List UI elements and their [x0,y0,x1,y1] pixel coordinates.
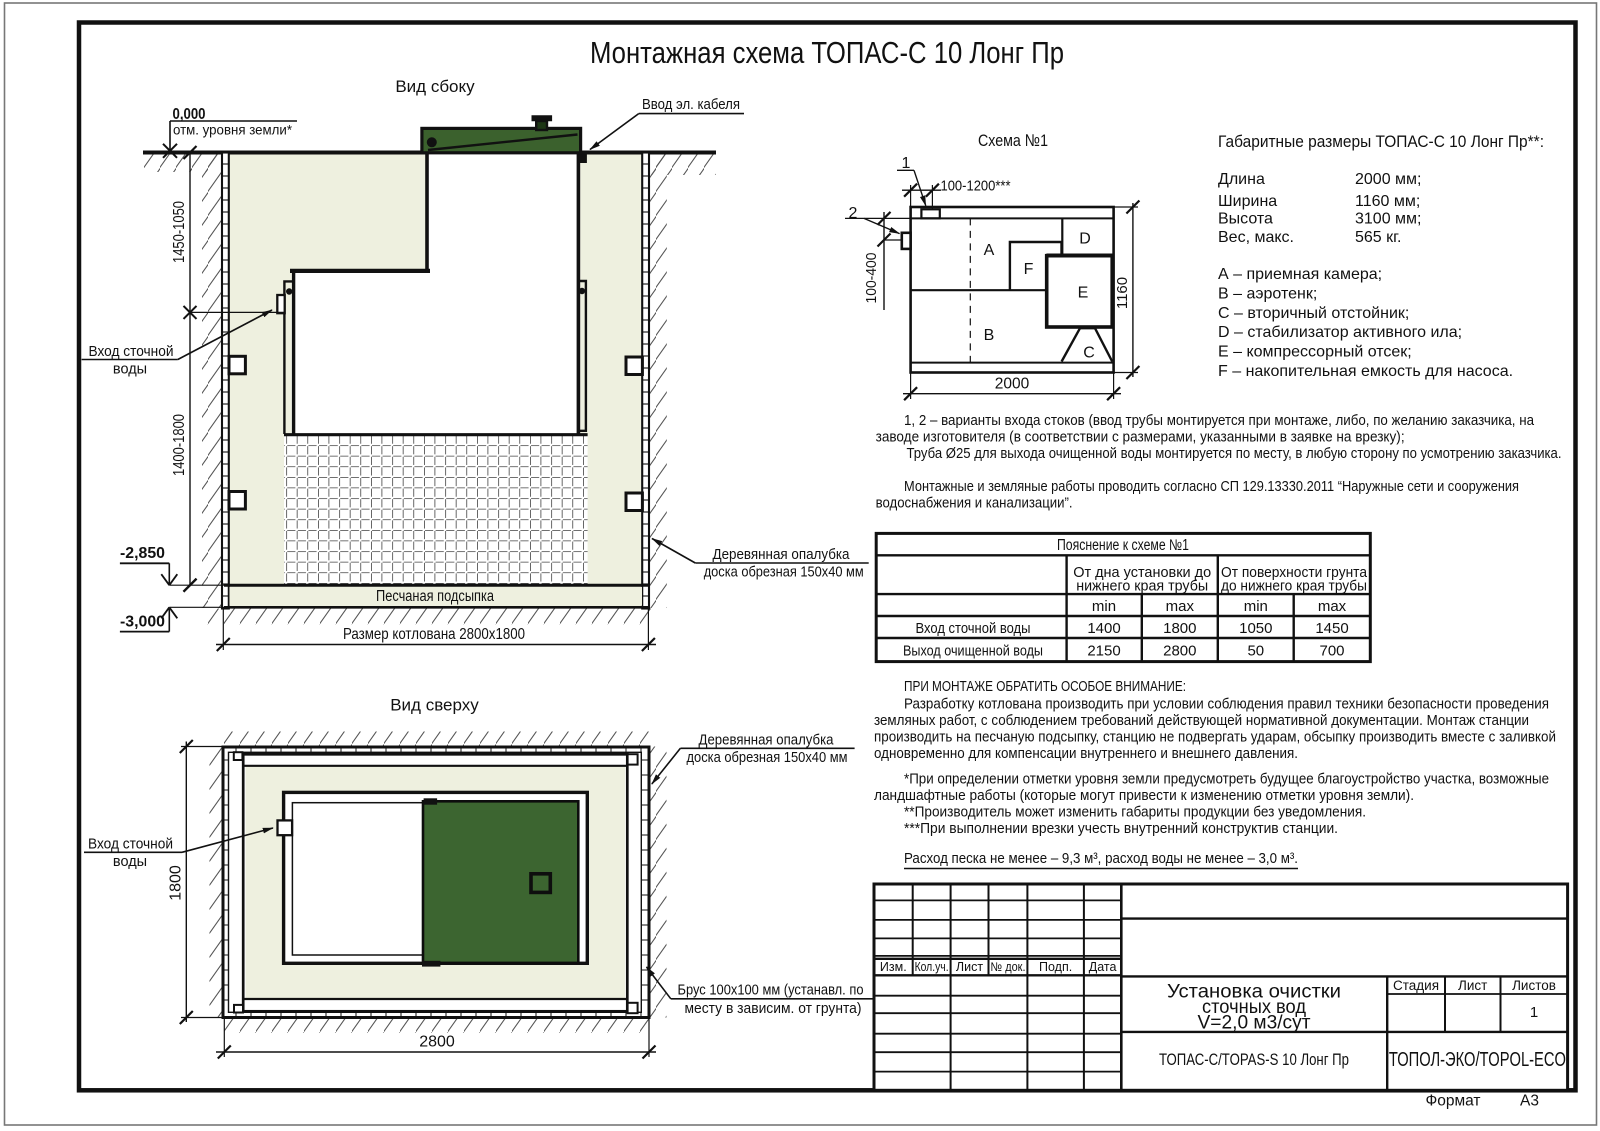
svg-text:А – приемная камера;: А – приемная камера; [1218,266,1382,283]
svg-text:F: F [1024,261,1034,278]
svg-text:1160: 1160 [1114,277,1131,309]
svg-text:1050: 1050 [1239,620,1272,637]
svg-text:Кол.уч.: Кол.уч. [915,960,949,974]
svg-text:1800: 1800 [1163,620,1196,637]
svg-text:Монтажная схема ТОПАС-С 10 Лон: Монтажная схема ТОПАС-С 10 Лонг Пр [590,35,1064,70]
svg-text:Вход сточной: Вход сточной [88,837,173,853]
svg-text:1: 1 [902,155,911,172]
svg-text:Разработку котлована производи: Разработку котлована производить при усл… [904,696,1549,713]
svg-text:№ док.: № док. [991,960,1026,974]
svg-text:Дата: Дата [1089,960,1117,974]
svg-text:max: max [1166,598,1195,615]
svg-text:одновременно для компенсации в: одновременно для компенсации внутреннего… [874,745,1298,762]
svg-text:2150: 2150 [1087,643,1120,660]
svg-text:B: B [984,327,995,344]
svg-text:Листов: Листов [1512,978,1556,993]
svg-text:Ввод эл. кабеля: Ввод эл. кабеля [642,97,740,113]
svg-text:ТОПОЛ-ЭКО/TOPOL-ECO: ТОПОЛ-ЭКО/TOPOL-ECO [1389,1049,1566,1071]
svg-text:1800: 1800 [168,865,185,901]
svg-text:водоснабжения и канализации”.: водоснабжения и канализации”. [876,495,1073,512]
svg-text:1450-1050: 1450-1050 [171,201,188,263]
svg-text:**Производитель может изменить: **Производитель может изменить габариты … [904,804,1366,821]
svg-text:производить на песчаную подсып: производить на песчаную подсыпку, станци… [874,729,1556,746]
svg-text:700: 700 [1319,643,1344,660]
svg-text:Песчаная подсыпка: Песчаная подсыпка [376,588,494,605]
svg-text:1450: 1450 [1315,620,1348,637]
svg-text:Высота: Высота [1218,211,1273,228]
svg-text:100-1200***: 100-1200*** [941,178,1011,195]
svg-text:Вход сточной: Вход сточной [89,344,174,360]
svg-text:Е – компрессорный отсек;: Е – компрессорный отсек; [1218,344,1412,361]
svg-text:1400: 1400 [1087,620,1120,637]
svg-text:доска обрезная 150х40 мм: доска обрезная 150х40 мм [704,565,864,581]
svg-text:Вид сверху: Вид сверху [390,696,479,715]
svg-text:V=2,0 м3/сут: V=2,0 м3/сут [1198,1013,1311,1034]
svg-text:воды: воды [113,854,147,870]
svg-text:2000 мм;: 2000 мм; [1355,171,1421,188]
svg-text:Деревянная опалубка: Деревянная опалубка [713,547,851,563]
svg-text:D: D [1079,231,1091,248]
svg-text:D – стабилизатор активного ила: D – стабилизатор активного ила; [1218,324,1462,341]
svg-text:2800: 2800 [419,1034,455,1051]
svg-text:Габаритные размеры ТОПАС-С 10: Габаритные размеры ТОПАС-С 10 Лонг Пр**: [1218,133,1544,151]
svg-text:1, 2 – варианты входа стоков: 1, 2 – варианты входа стоков (ввод трубы… [904,412,1535,429]
svg-text:50: 50 [1247,643,1264,660]
svg-text:*При определении отметки уровн: *При определении отметки уровня земли пр… [904,771,1549,788]
svg-text:C: C [1083,345,1095,362]
svg-text:1160 мм;: 1160 мм; [1355,193,1420,210]
svg-text:Брус 100х100 мм (устанавл. по: Брус 100х100 мм (устанавл. по [678,983,864,999]
svg-text:Вход сточной воды: Вход сточной воды [916,620,1031,637]
svg-text:отм. уровня земли*: отм. уровня земли* [173,123,293,138]
svg-text:Деревянная опалубка: Деревянная опалубка [699,733,835,749]
svg-text:заводе изготовителя (в соответ: заводе изготовителя (в соответствии с ра… [876,429,1405,446]
svg-text:***При выполнении врезки учест: ***При выполнении врезки учесть внутренн… [904,820,1338,837]
svg-text:Вид сбоку: Вид сбоку [395,77,475,96]
svg-text:Пояснение к схеме №1: Пояснение к схеме №1 [1057,537,1189,554]
svg-text:Длина: Длина [1218,171,1265,188]
svg-text:С – вторичный отстойник;: С – вторичный отстойник; [1218,305,1409,322]
svg-text:ландшафтные работы (которые мо: ландшафтные работы (которые могут привес… [874,787,1414,804]
svg-text:Выход очищенной воды: Выход очищенной воды [903,643,1043,660]
svg-text:Вес, макс.: Вес, макс. [1218,229,1294,246]
svg-text:В – аэротенк;: В – аэротенк; [1218,285,1317,302]
svg-text:A: A [984,242,995,259]
svg-text:min: min [1244,598,1268,615]
svg-text:E: E [1078,285,1089,302]
svg-text:-3,000: -3,000 [120,614,165,631]
svg-text:Стадия: Стадия [1393,978,1439,993]
svg-text:А3: А3 [1520,1093,1539,1110]
svg-text:Подп.: Подп. [1039,960,1072,974]
svg-text:доска обрезная 150х40 мм: доска обрезная 150х40 мм [687,750,848,766]
svg-text:воды: воды [113,362,147,378]
svg-text:ТОПАС-С/TOPAS-S 10 Лонг Пр: ТОПАС-С/TOPAS-S 10 Лонг Пр [1159,1051,1349,1069]
svg-text:Изм.: Изм. [880,960,907,974]
svg-text:ПРИ МОНТАЖЕ ОБРАТИТЬ ОСОБОЕ ВН: ПРИ МОНТАЖЕ ОБРАТИТЬ ОСОБОЕ ВНИМАНИЕ: [904,678,1186,695]
svg-text:до нижнего края трубы: до нижнего края трубы [1221,579,1367,595]
svg-text:нижнего края трубы: нижнего края трубы [1076,579,1208,595]
svg-text:2: 2 [849,205,858,222]
svg-text:Расход песка не менее – 9,3 м³: Расход песка не менее – 9,3 м³, расход в… [904,850,1298,867]
svg-text:2800: 2800 [1163,643,1196,660]
svg-text:Лист: Лист [1458,978,1487,993]
svg-text:max: max [1318,598,1347,615]
svg-text:2000: 2000 [995,376,1030,393]
svg-text:Ширина: Ширина [1218,193,1277,210]
svg-text:1400-1800: 1400-1800 [171,414,188,476]
svg-text:месту в зависим. от грунта): месту в зависим. от грунта) [685,1001,862,1017]
svg-text:-2,850: -2,850 [120,545,165,562]
svg-text:3100 мм;: 3100 мм; [1355,211,1421,228]
svg-text:F – накопительная емкость для: F – накопительная емкость для насоса. [1218,363,1513,380]
svg-text:1: 1 [1530,1004,1538,1021]
svg-text:Монтажные и земляные работы пр: Монтажные и земляные работы проводить со… [904,478,1519,495]
svg-text:Схема №1: Схема №1 [978,131,1048,150]
svg-text:100-400: 100-400 [863,253,880,304]
svg-text:Размер котлована 2800х1800: Размер котлована 2800х1800 [343,626,525,643]
svg-text:Труба Ø25 для выхода очищенной: Труба Ø25 для выхода очищенной воды монт… [907,445,1562,462]
svg-text:земляных работ, с соблюдением: земляных работ, с соблюдением требований… [874,712,1529,729]
svg-text:Лист: Лист [956,960,983,974]
svg-text:min: min [1092,598,1116,615]
svg-text:Формат: Формат [1425,1093,1480,1110]
svg-text:565 кг.: 565 кг. [1355,229,1401,246]
